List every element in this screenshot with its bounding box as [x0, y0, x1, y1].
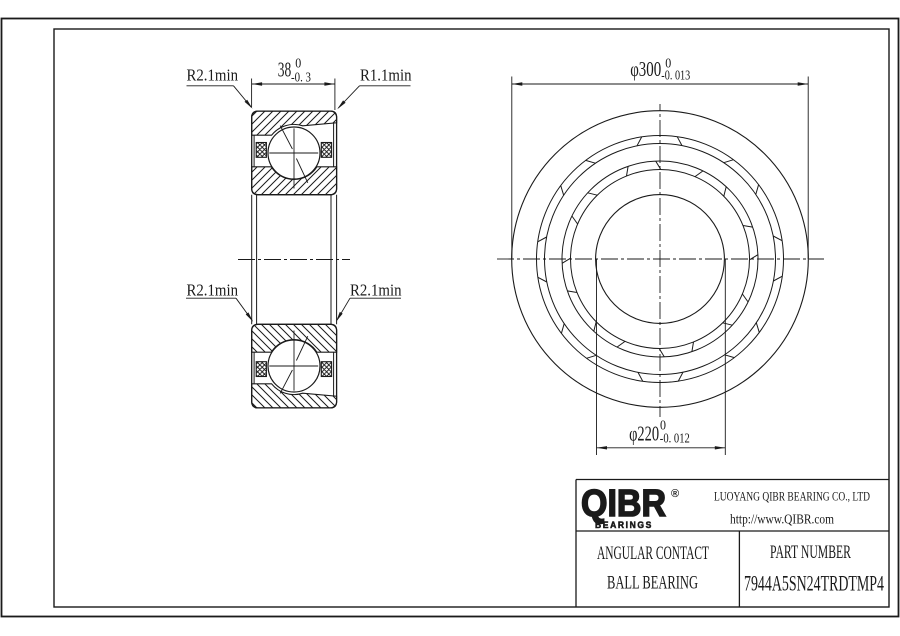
svg-text:0: 0 — [295, 56, 301, 71]
svg-text:φ300: φ300 — [630, 57, 661, 81]
svg-text:7944A5SN24TRDTMP4: 7944A5SN24TRDTMP4 — [744, 571, 884, 596]
svg-text:PART NUMBER: PART NUMBER — [770, 542, 851, 563]
svg-text:φ220: φ220 — [629, 422, 659, 446]
svg-text:®: ® — [671, 488, 679, 500]
svg-text:ANGULAR CONTACT: ANGULAR CONTACT — [597, 543, 709, 564]
svg-text:R2.1min: R2.1min — [187, 281, 239, 300]
svg-text:QIBR: QIBR — [581, 483, 666, 525]
svg-text:http://www.QIBR.com: http://www.QIBR.com — [730, 513, 834, 528]
svg-text:-0. 3: -0. 3 — [291, 71, 311, 86]
svg-text:R2.1min: R2.1min — [350, 281, 402, 300]
svg-text:BALL BEARING: BALL BEARING — [607, 573, 698, 594]
svg-text:-0. 013: -0. 013 — [661, 68, 690, 83]
svg-text:BEARINGS: BEARINGS — [595, 520, 653, 531]
svg-text:38: 38 — [278, 58, 292, 82]
svg-text:R1.1min: R1.1min — [360, 66, 412, 85]
svg-text:LUOYANG QIBR BEARING CO., LTD: LUOYANG QIBR BEARING CO., LTD — [714, 489, 870, 504]
svg-text:-0. 012: -0. 012 — [660, 432, 690, 447]
svg-text:R2.1min: R2.1min — [187, 66, 239, 85]
